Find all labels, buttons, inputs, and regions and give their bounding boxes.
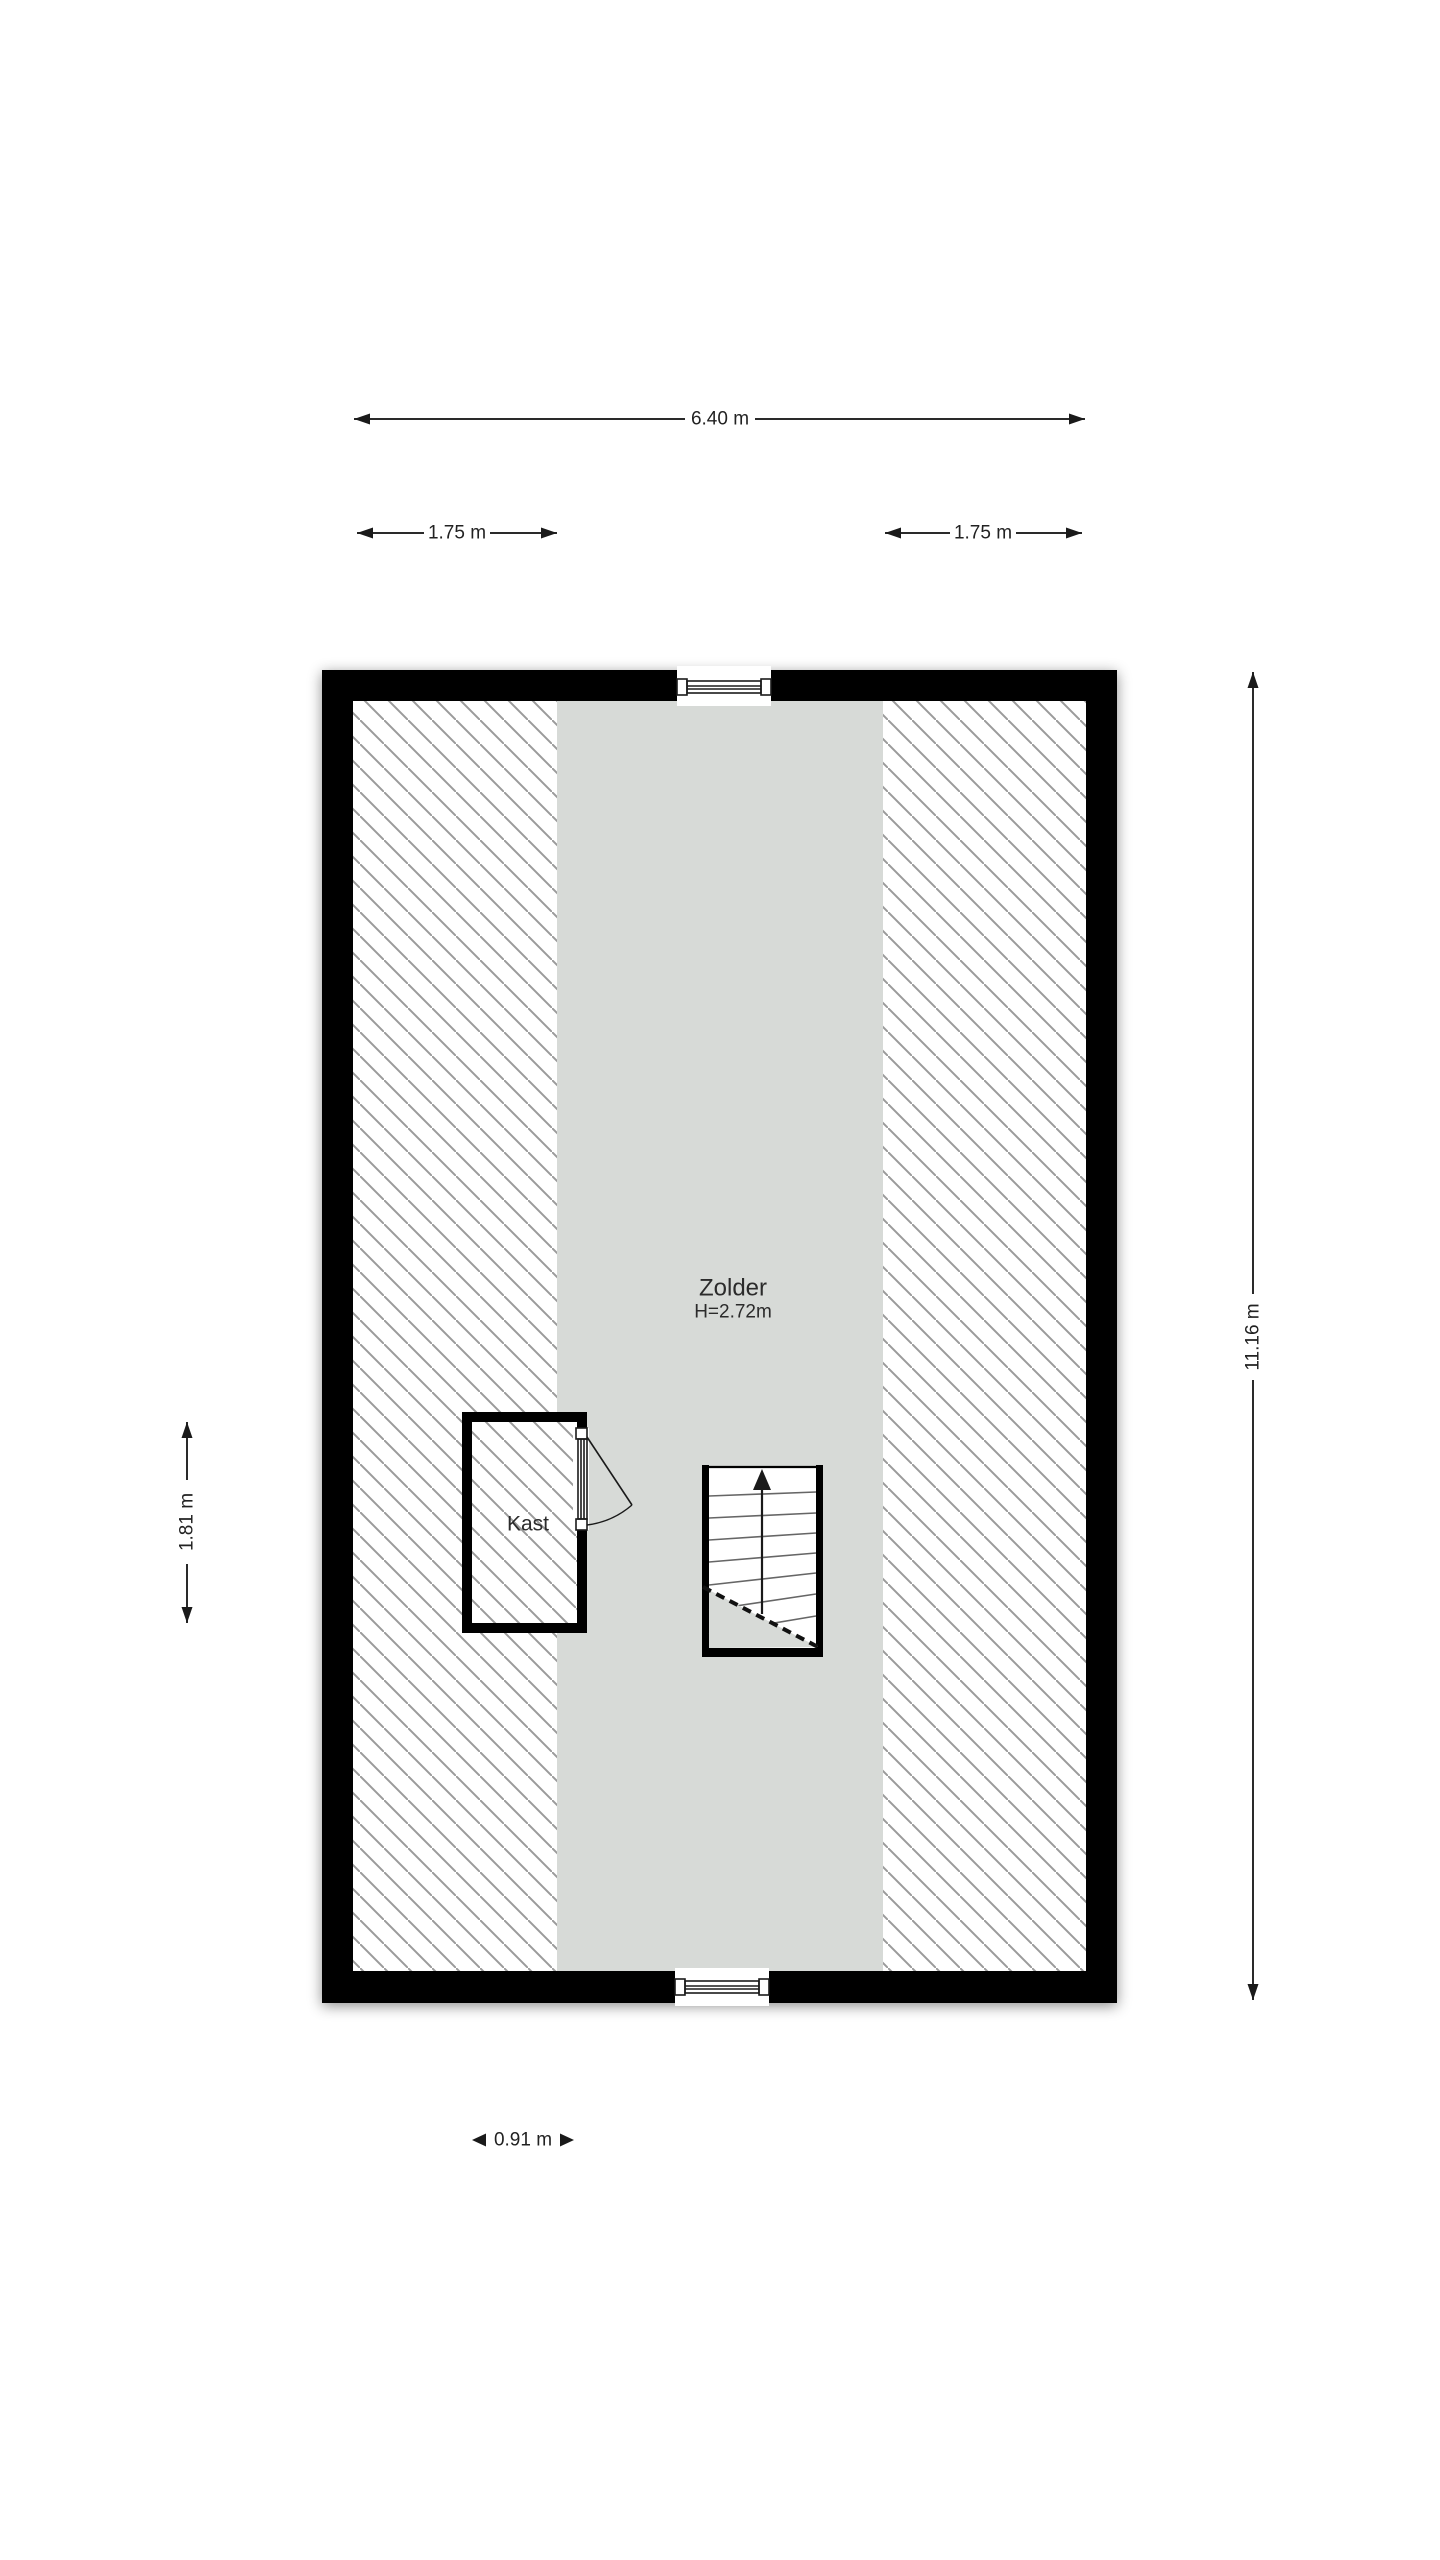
arrow-down-icon [182, 1607, 193, 1623]
arrow-left-icon [354, 414, 370, 425]
stairs-wall-right [816, 1465, 823, 1657]
arrow-left-icon [357, 528, 373, 539]
stairs-wall-bottom [702, 1648, 823, 1657]
sloped-ceiling-zone-right [883, 701, 1086, 1971]
right-slope-width-label: 1.75 m [954, 523, 1012, 544]
dimension-window-width: 0.91 m [472, 2130, 574, 2151]
window-bottom [675, 1968, 769, 2006]
arrow-left-icon [472, 2134, 486, 2147]
closet-height-label: 1.81 m [177, 1493, 198, 1551]
window-width-label: 0.91 m [494, 2130, 552, 2151]
room-height-label: H=2.72m [694, 1302, 772, 1323]
total-width-label: 6.40 m [691, 409, 749, 430]
closet-name-label: Kast [507, 1513, 549, 1536]
dimension-total-width: 6.40 m [354, 409, 1085, 430]
arrow-up-icon [182, 1422, 193, 1438]
dimension-right-slope-width: 1.75 m [885, 523, 1082, 544]
stairs-wall-left [702, 1465, 709, 1657]
arrow-right-icon [1069, 414, 1085, 425]
window-top [677, 666, 771, 706]
room-label-group: Zolder H=2.72m [694, 1275, 772, 1323]
arrow-right-icon [541, 528, 557, 539]
room-name-label: Zolder [699, 1275, 767, 1302]
arrow-up-icon [1248, 672, 1259, 688]
left-slope-width-label: 1.75 m [428, 523, 486, 544]
dimension-left-slope-width: 1.75 m [357, 523, 557, 544]
arrow-down-icon [1248, 1984, 1259, 2000]
floor-plan-drawing: 6.40 m 1.75 m 1.75 m [0, 0, 1440, 2560]
attic-floor-area [557, 701, 883, 1971]
arrow-left-icon [885, 528, 901, 539]
arrow-right-icon [1066, 528, 1082, 539]
stairs [702, 1465, 823, 1657]
plan-walls [322, 670, 1117, 2003]
dimension-closet-height: 1.81 m [177, 1422, 198, 1623]
arrow-right-icon [560, 2134, 574, 2147]
total-height-label: 11.16 m [1243, 1303, 1264, 1370]
sloped-ceiling-zone-left [353, 701, 557, 1971]
dimension-total-height: 11.16 m [1243, 672, 1264, 2000]
floor-plan-page: 6.40 m 1.75 m 1.75 m [0, 0, 1440, 2560]
